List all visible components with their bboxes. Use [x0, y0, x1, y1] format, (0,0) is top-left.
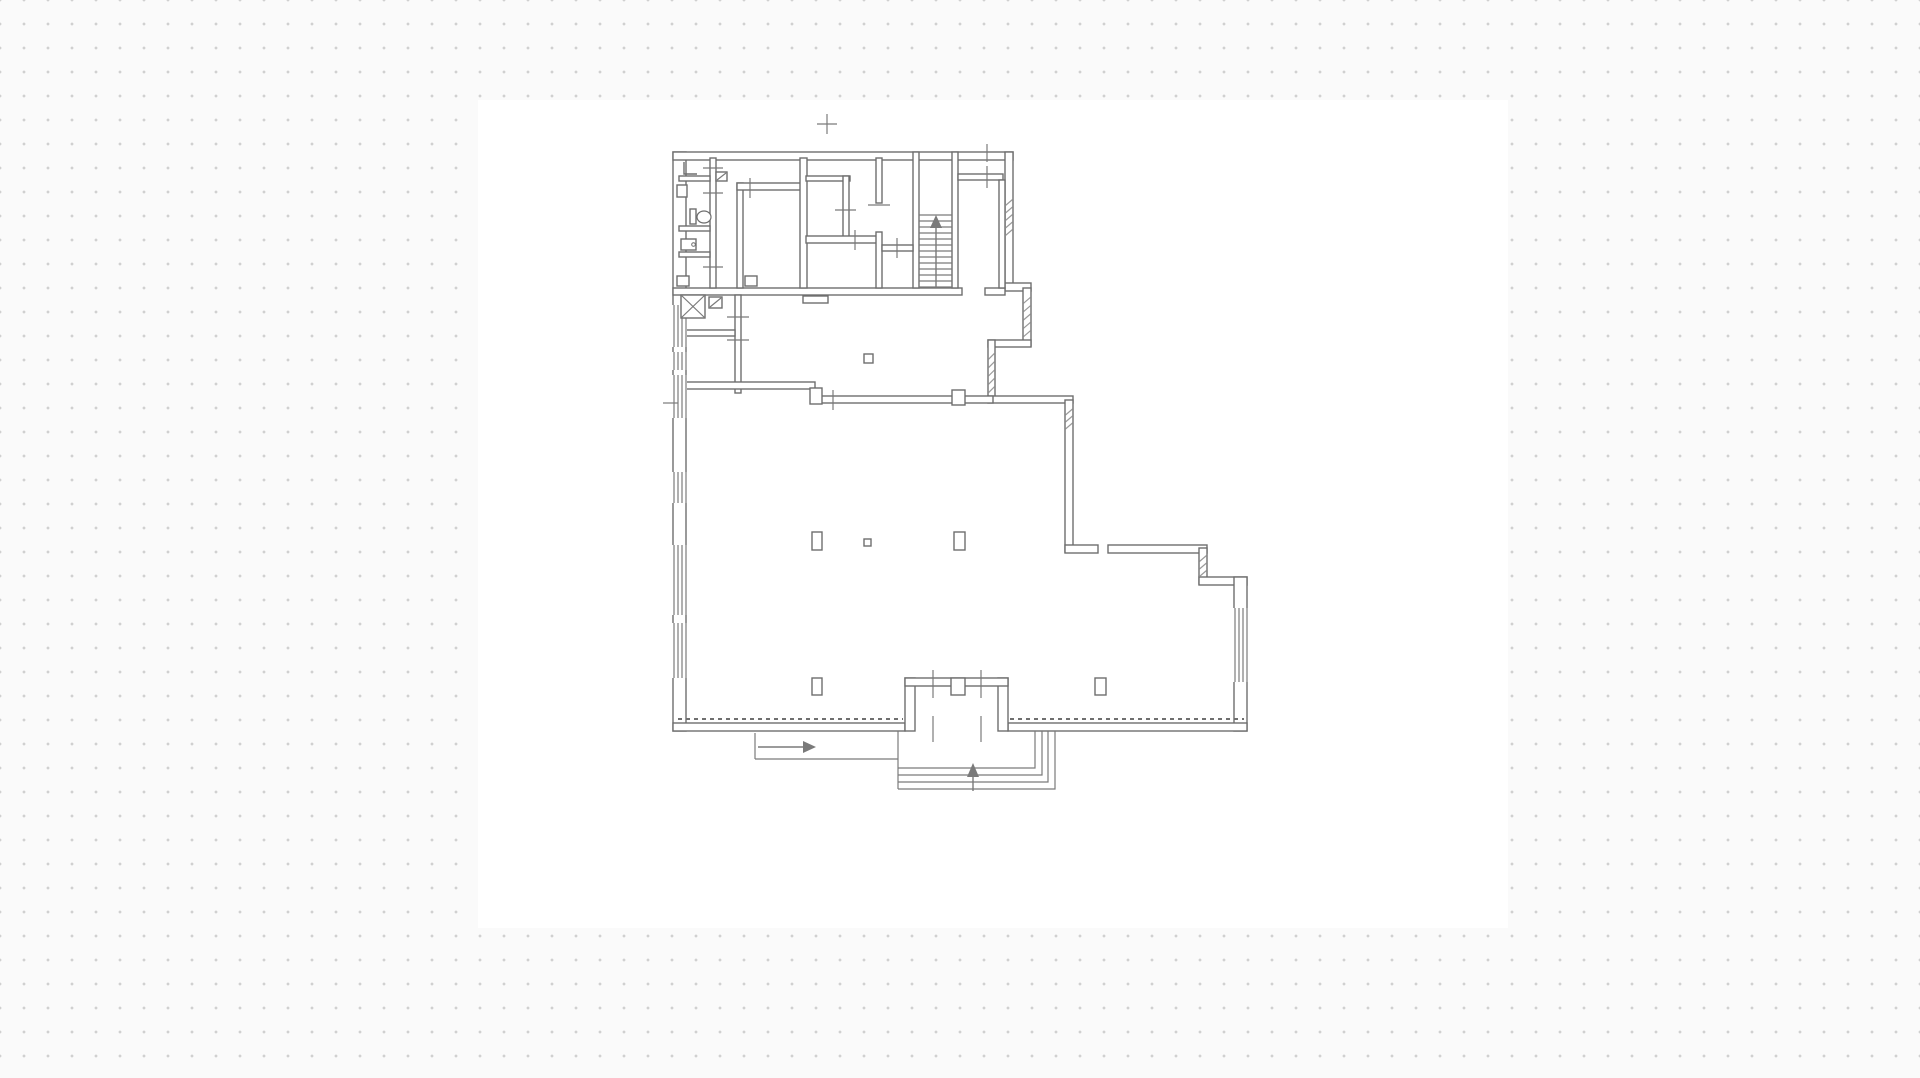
main-room-top-wall-left: [679, 382, 815, 389]
partition-wall-d: [806, 236, 878, 243]
column-hall: [864, 354, 873, 363]
door-tab-sanitary: [677, 276, 689, 286]
column: [1095, 678, 1106, 695]
upper-block-bottom-stub: [985, 288, 1005, 295]
topright-corridor-wall: [999, 180, 1005, 288]
topright-room-bottom-wall: [958, 174, 1003, 180]
inner-room-top-wall: [737, 183, 806, 190]
sanitary-divider-2: [679, 226, 710, 231]
stair-wall-right: [952, 152, 958, 288]
strip-wall-lower: [876, 232, 882, 288]
right-ext-wall-b: [1108, 545, 1207, 553]
door-recess: [803, 296, 828, 303]
sanitary-strip-wall: [710, 158, 716, 288]
right-ext-wall-a: [1065, 545, 1098, 553]
partition-wall-c: [843, 176, 849, 241]
main-room-top-ext-wall: [988, 396, 1073, 403]
hall-vertical-wall: [735, 295, 741, 393]
door-tab-inner-room: [745, 276, 757, 286]
exterior-top-wall: [673, 152, 1013, 160]
column: [812, 532, 822, 550]
design-canvas[interactable]: [0, 0, 1920, 1078]
column-small: [864, 539, 871, 546]
main-room-top-wall-right: [820, 396, 993, 403]
exterior-bottom-wall-left: [673, 723, 905, 731]
hall-horizontal-wall: [679, 330, 735, 336]
sanitary-divider-1: [679, 176, 710, 181]
pilaster-wall-junction: [810, 388, 822, 404]
upper-block-bottom-wall: [673, 288, 962, 295]
sanitary-divider-3: [679, 252, 710, 257]
column: [812, 678, 822, 695]
inner-room-left-wall: [737, 183, 743, 288]
door-tab-wc: [677, 185, 687, 197]
drawing-sheet: [478, 100, 1508, 928]
exterior-bottom-wall-right: [1008, 723, 1247, 731]
wc-toilet-tank: [690, 209, 696, 224]
stair-wall-left: [913, 152, 919, 288]
wc-toilet-bowl: [697, 211, 711, 223]
exterior-right-mid-wall: [1065, 400, 1073, 552]
sink: [681, 239, 696, 250]
strip-wall-upper: [876, 158, 882, 203]
vestibule-door-tab: [951, 678, 965, 695]
column: [954, 532, 965, 550]
floor-plan-canvas[interactable]: [0, 0, 1920, 1078]
pilaster-top-wall: [952, 390, 965, 405]
